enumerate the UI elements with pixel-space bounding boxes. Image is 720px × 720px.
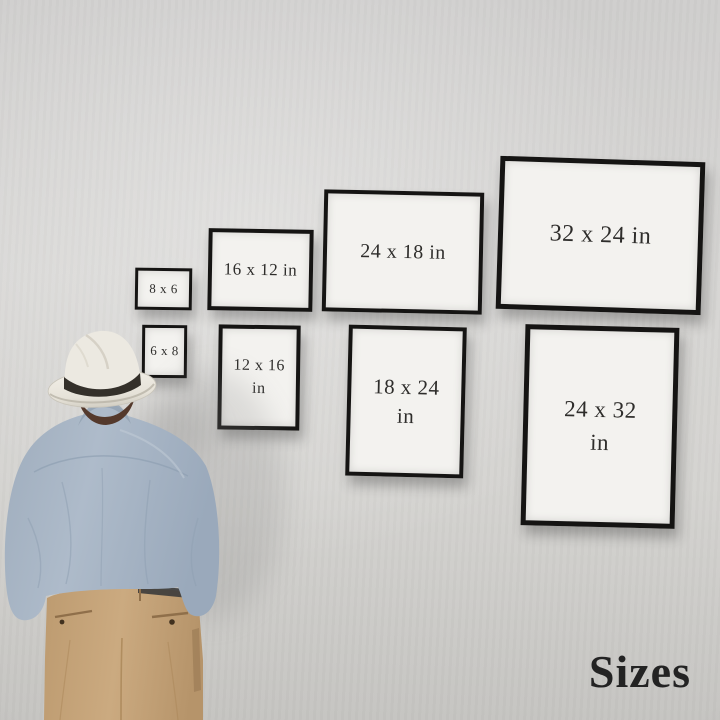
size-label-6x8: 6 x 8 (150, 342, 179, 360)
pants-right-shade (192, 628, 201, 692)
pants-fold-left (60, 640, 70, 720)
shirt-collar (78, 400, 131, 426)
pants-fold-right (168, 642, 178, 720)
size-label-12x16: 12 x 16 in (233, 355, 285, 400)
hat-brim-edge-shadow (50, 384, 154, 402)
shirt-highlight (120, 430, 184, 478)
back-pocket-right (152, 613, 188, 617)
size-label-8x6: 8 x 6 (149, 280, 178, 299)
frame-24x32: 24 x 32 in (521, 324, 680, 529)
scene-wall: 8 x 6 16 x 12 in 24 x 18 in 32 x 24 in 6… (0, 0, 720, 720)
pants-body (44, 588, 203, 720)
hat-crown-crease (86, 335, 108, 369)
hat-crown-dent (76, 344, 88, 367)
frame-12x16: 12 x 16 in (217, 324, 300, 430)
shirt-fold-3 (101, 468, 103, 586)
size-label-24x18: 24 x 18 in (360, 237, 446, 267)
frame-8x6: 8 x 6 (135, 268, 193, 311)
shirt-yoke-seam (34, 456, 188, 476)
hat-band (64, 373, 141, 397)
shirt-body (5, 403, 219, 620)
size-label-18x24: 18 x 24 in (372, 372, 440, 430)
hat-crown (65, 331, 141, 394)
hat (47, 331, 157, 411)
frame-18x24: 18 x 24 in (345, 325, 467, 479)
shirt (5, 400, 219, 620)
pocket-button-left (60, 620, 65, 625)
back-pocket-left (55, 611, 92, 617)
pants-center-seam (121, 638, 122, 720)
size-label-24x32: 24 x 32 in (563, 393, 637, 459)
shirt-fold-2 (145, 480, 150, 584)
hair (77, 396, 135, 425)
frame-6x8: 6 x 8 (142, 325, 187, 378)
sleeve-fold-left (28, 518, 41, 588)
shirt-fold-1 (62, 482, 71, 584)
hat-brim (47, 365, 157, 410)
frame-16x12: 16 x 12 in (207, 228, 313, 312)
pocket-button-right (169, 619, 175, 625)
belt (138, 585, 199, 599)
frame-24x18: 24 x 18 in (322, 189, 485, 314)
sleeve-fold-right (191, 518, 198, 586)
size-label-32x24: 32 x 24 in (549, 217, 652, 254)
size-label-16x12: 16 x 12 in (224, 257, 298, 282)
hat-wall-shadow (130, 400, 214, 460)
frame-32x24: 32 x 24 in (496, 156, 706, 315)
pants (44, 585, 203, 720)
sizes-caption: Sizes (589, 645, 691, 698)
